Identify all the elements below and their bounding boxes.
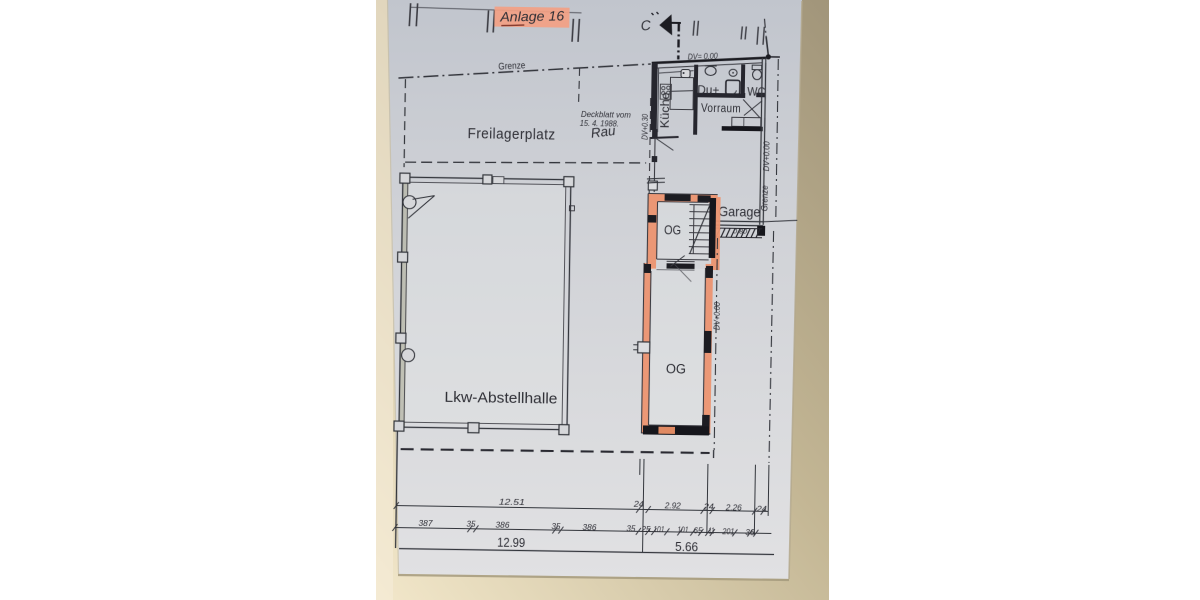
svg-text:65: 65 <box>693 526 703 535</box>
svg-text:DV+0.00: DV+0.00 <box>762 141 771 172</box>
svg-text:387: 387 <box>418 519 433 528</box>
svg-text:Grenze: Grenze <box>759 185 769 211</box>
svg-text:12.51: 12.51 <box>499 497 525 507</box>
svg-text:201: 201 <box>721 527 734 536</box>
svg-text:Vorraum: Vorraum <box>701 103 741 116</box>
svg-text:Garage: Garage <box>718 203 760 220</box>
svg-text:DV+0.00: DV+0.00 <box>713 302 722 331</box>
svg-text:2.92: 2.92 <box>664 501 682 510</box>
svg-text:2.26: 2.26 <box>725 503 743 512</box>
svg-text:Küche: Küche <box>660 92 673 128</box>
svg-text:12.99: 12.99 <box>497 535 525 550</box>
svg-text:101: 101 <box>677 525 688 534</box>
svg-text:OG: OG <box>666 361 686 376</box>
svg-text:35: 35 <box>551 522 561 531</box>
svg-text:Rau: Rau <box>590 123 617 141</box>
svg-text:Freilagerplatz: Freilagerplatz <box>467 125 555 143</box>
svg-text:0.80: 0.80 <box>733 228 748 235</box>
svg-text:24: 24 <box>703 502 715 511</box>
svg-text:35: 35 <box>626 524 636 533</box>
svg-text:Lkw-Abstellhalle: Lkw-Abstellhalle <box>444 389 557 408</box>
svg-text:101: 101 <box>653 525 664 534</box>
svg-text:WC: WC <box>747 85 766 99</box>
svg-text:36: 36 <box>745 528 755 537</box>
svg-text:35: 35 <box>466 520 476 529</box>
svg-text:Du+: Du+ <box>697 83 719 97</box>
svg-text:386: 386 <box>582 523 597 532</box>
svg-text:Anlage 16: Anlage 16 <box>499 8 565 24</box>
svg-text:24: 24 <box>633 500 645 509</box>
svg-text:11: 11 <box>708 526 714 535</box>
svg-text:5.66: 5.66 <box>675 540 698 554</box>
svg-text:24: 24 <box>756 505 768 514</box>
svg-text:25: 25 <box>640 525 651 534</box>
svg-text:386: 386 <box>495 521 510 530</box>
svg-text:Grenze: Grenze <box>498 60 526 72</box>
svg-text:DV+0.30: DV+0.30 <box>641 113 650 140</box>
svg-text:OG: OG <box>664 223 681 237</box>
